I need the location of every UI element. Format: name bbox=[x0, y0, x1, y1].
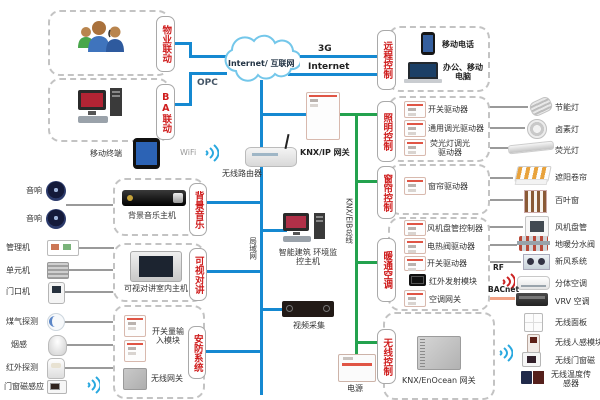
line-speakers bbox=[66, 204, 114, 206]
awning-icon bbox=[514, 166, 551, 182]
security-tag-label: 安防系统 bbox=[192, 334, 202, 372]
music-tag: 背景音乐 bbox=[189, 183, 207, 236]
monitor-host-label: 智能建筑 环境监控主机 bbox=[277, 248, 339, 266]
line-lamp2 bbox=[487, 127, 525, 129]
line-internet bbox=[288, 73, 379, 76]
line-lan-vertical bbox=[260, 80, 263, 395]
line-manifold bbox=[487, 244, 517, 246]
halogen-lamp-label: 卤素灯 bbox=[555, 125, 579, 134]
speaker2-icon bbox=[46, 209, 66, 229]
switch-actuator2-label: 开关驱动器 bbox=[427, 259, 467, 268]
ir-icon bbox=[47, 358, 65, 379]
fancoil-icon bbox=[525, 216, 549, 237]
hvac-tag-label: 暖通空调 bbox=[382, 251, 392, 289]
people-icon bbox=[72, 18, 128, 66]
wifi-waves-icon bbox=[203, 143, 219, 163]
mgmt-label: 管理机 bbox=[6, 243, 30, 252]
wireless-panel-icon bbox=[524, 313, 543, 332]
knx-ip-gateway-label: KNX/IP 网关 bbox=[300, 148, 350, 157]
fluorescent-lamp-label: 荧光灯 bbox=[555, 146, 579, 155]
line-mgmt bbox=[77, 247, 114, 249]
wireless-tag-label: 无线控制 bbox=[382, 338, 392, 376]
security-tag: 安防系统 bbox=[188, 326, 206, 379]
input-module-label: 开关量输入模块 bbox=[149, 327, 187, 345]
curtain-tag-label: 窗帘控制 bbox=[382, 174, 392, 212]
lighting-tag: 照明控制 bbox=[377, 101, 396, 162]
line-unit bbox=[67, 269, 114, 271]
tablet-icon bbox=[133, 138, 160, 169]
router-icon bbox=[245, 147, 297, 167]
cfl-lamp-label: 节能灯 bbox=[555, 103, 579, 112]
opc-label: OPC bbox=[197, 78, 218, 88]
ba-tag-label: BA联动 bbox=[161, 92, 171, 133]
bacnet-label: BACnet bbox=[488, 286, 519, 295]
speaker1-icon bbox=[46, 181, 66, 201]
property-tag-label: 物业联动 bbox=[161, 25, 171, 63]
remote-tag: 远程控制 bbox=[377, 30, 396, 90]
video-capture-icon bbox=[282, 301, 334, 317]
ac-gateway-label: 空调网关 bbox=[429, 295, 461, 304]
line-security-stub bbox=[203, 350, 262, 353]
dimmer-actuator-label: 通用调光驱动器 bbox=[428, 124, 484, 133]
doorunit-label: 门口机 bbox=[6, 287, 30, 296]
line-knxip-stub bbox=[262, 113, 306, 116]
intercom-tag: 可视对讲 bbox=[189, 248, 207, 301]
curtain-actuator-icon bbox=[404, 177, 426, 195]
line-intercom-stub bbox=[204, 270, 262, 273]
vrv-icon bbox=[516, 293, 548, 306]
lighting-tag-label: 照明控制 bbox=[382, 113, 392, 151]
power-label: 电源 bbox=[347, 384, 363, 393]
wireless-motion-icon bbox=[527, 334, 540, 353]
magnet-wifi-icon bbox=[84, 376, 100, 394]
splitac-icon bbox=[517, 276, 550, 290]
3g-label: 3G bbox=[318, 44, 332, 54]
switch-actuator2-icon bbox=[404, 256, 426, 271]
magnet-icon bbox=[47, 380, 67, 394]
gas-icon bbox=[47, 313, 65, 331]
switch-actuator1-label: 开关驱动器 bbox=[428, 105, 468, 114]
fancoil-ctrl-icon bbox=[404, 220, 426, 236]
router-label: 无线路由器 bbox=[222, 169, 262, 178]
remote-tag-label: 远程控制 bbox=[382, 41, 392, 79]
music-host-label: 背景音乐主机 bbox=[128, 211, 176, 220]
property-tag: 物业联动 bbox=[156, 16, 175, 72]
fluorescent-lamp-icon bbox=[508, 141, 555, 155]
mgmt-icon bbox=[47, 240, 79, 256]
line-music-stub bbox=[204, 201, 262, 204]
phone-label: 移动电话 bbox=[442, 40, 474, 49]
gas-label: 煤气探测 bbox=[6, 317, 38, 326]
ir-label: 红外探测 bbox=[6, 363, 38, 372]
speaker2-label: 音响 bbox=[26, 214, 42, 223]
hvac-tag: 暖通空调 bbox=[377, 238, 396, 302]
knx-bus-label: KNX/EIB总线 bbox=[344, 198, 353, 243]
intercom-host-icon bbox=[130, 251, 182, 282]
wireless-temp-icon bbox=[521, 371, 532, 384]
ir-emitter-icon bbox=[409, 274, 426, 286]
line-lamp1 bbox=[487, 106, 528, 108]
fluorescent-actuator-label: 荧光灯调光驱动器 bbox=[427, 139, 473, 157]
freshair-icon bbox=[523, 254, 550, 270]
fluorescent-actuator-icon bbox=[404, 139, 426, 156]
line-smoke bbox=[65, 344, 114, 346]
unit-icon bbox=[47, 262, 69, 279]
enocean-wifi-icon bbox=[497, 342, 513, 364]
switch-actuator1-icon bbox=[404, 101, 426, 118]
video-capture-label: 视频采集 bbox=[293, 321, 325, 330]
power-supply-icon bbox=[338, 354, 376, 382]
lan-label: 局域网 bbox=[248, 237, 257, 260]
wireless-magnet-icon bbox=[522, 352, 541, 367]
enocean-gateway-label: KNX/EnOcean 网关 bbox=[402, 376, 476, 385]
halogen-lamp-icon bbox=[527, 119, 547, 139]
wireless-tag: 无线控制 bbox=[377, 329, 396, 384]
ir-emitter-label: 红外发射模块 bbox=[429, 277, 477, 286]
music-tag-label: 背景音乐 bbox=[193, 191, 203, 229]
curtain-actuator-label: 窗帘驱动器 bbox=[428, 182, 468, 191]
knx-ip-gateway-icon bbox=[306, 92, 340, 140]
ac-gateway-icon bbox=[404, 290, 426, 307]
valve-actuator-icon bbox=[404, 238, 426, 254]
wifi-label: WiFi bbox=[180, 148, 196, 157]
line-knx-bus-top bbox=[340, 113, 380, 116]
unit-label: 单元机 bbox=[6, 266, 30, 275]
intercom-tag-label: 可视对讲 bbox=[193, 256, 203, 294]
intercom-host-label: 可视对讲室内主机 bbox=[124, 284, 188, 293]
line-ba-v bbox=[189, 72, 192, 106]
line-blinds bbox=[487, 199, 523, 201]
line-fancoil bbox=[487, 226, 523, 228]
line-video-stub bbox=[262, 308, 284, 311]
awning-label: 遮阳卷帘 bbox=[555, 173, 587, 182]
blinds-label: 百叶窗 bbox=[555, 196, 579, 205]
cfl-lamp-icon bbox=[528, 95, 554, 118]
internet-cloud-label: Internet/ 互联网 bbox=[228, 58, 295, 69]
smoke-icon bbox=[48, 335, 67, 356]
magnet-label: 门窗磁感应 bbox=[4, 382, 44, 391]
diagram-canvas: Internet/ 互联网 物业联动 BA联动 OPC 3G Internet … bbox=[0, 0, 600, 400]
smoke-label: 烟感 bbox=[11, 340, 27, 349]
splitac-label: 分体空调 bbox=[555, 279, 587, 288]
line-ir bbox=[63, 367, 114, 369]
rf-label: RF bbox=[493, 264, 504, 273]
fancoil-label: 风机盘管 bbox=[555, 223, 587, 232]
line-lamp3 bbox=[487, 147, 508, 149]
line-3g bbox=[288, 55, 379, 58]
line-knx-bus-vertical bbox=[355, 113, 358, 357]
freshair-label: 新风系统 bbox=[555, 257, 587, 266]
fancoil-ctrl-label: 风机盘管控制器 bbox=[427, 224, 483, 233]
laptop-label: 办公、移动电脑 bbox=[440, 63, 486, 81]
laptop-icon bbox=[408, 62, 438, 79]
input-module1-icon bbox=[124, 315, 146, 337]
curtain-tag: 窗帘控制 bbox=[377, 166, 396, 219]
security-wireless-gw-icon bbox=[123, 368, 147, 390]
music-host-icon bbox=[122, 190, 186, 206]
internet-label: Internet bbox=[308, 62, 349, 72]
blinds-icon bbox=[524, 190, 547, 213]
line-awning bbox=[487, 177, 513, 179]
line-gas bbox=[63, 321, 114, 323]
input-module2-icon bbox=[124, 340, 146, 362]
mobile-terminal-label: 移动终端 bbox=[90, 149, 122, 158]
monitor-host-icon bbox=[283, 213, 335, 251]
wireless-motion-label: 无线人感模块 bbox=[555, 338, 600, 347]
speaker1-label: 音响 bbox=[26, 186, 42, 195]
ba-tag: BA联动 bbox=[156, 84, 175, 140]
enocean-gateway-icon bbox=[417, 336, 461, 370]
valve-actuator-label: 电热阀驱动器 bbox=[427, 242, 475, 251]
wireless-magnet-label: 无线门窗磁 bbox=[555, 356, 595, 365]
doorunit-icon bbox=[48, 282, 65, 304]
line-door bbox=[63, 291, 114, 293]
phone-icon bbox=[421, 32, 435, 55]
vrv-label: VRV 空调 bbox=[555, 297, 590, 306]
wireless-temp-label: 无线温度传感器 bbox=[551, 370, 591, 388]
manifold-label: 地暖分水阀 bbox=[555, 240, 595, 249]
manifold-icon bbox=[519, 236, 548, 251]
dimmer-actuator-icon bbox=[404, 120, 426, 137]
ba-computer-icon bbox=[76, 88, 128, 132]
wireless-panel-label: 无线面板 bbox=[555, 318, 587, 327]
security-wireless-gw-label: 无线网关 bbox=[151, 374, 183, 383]
